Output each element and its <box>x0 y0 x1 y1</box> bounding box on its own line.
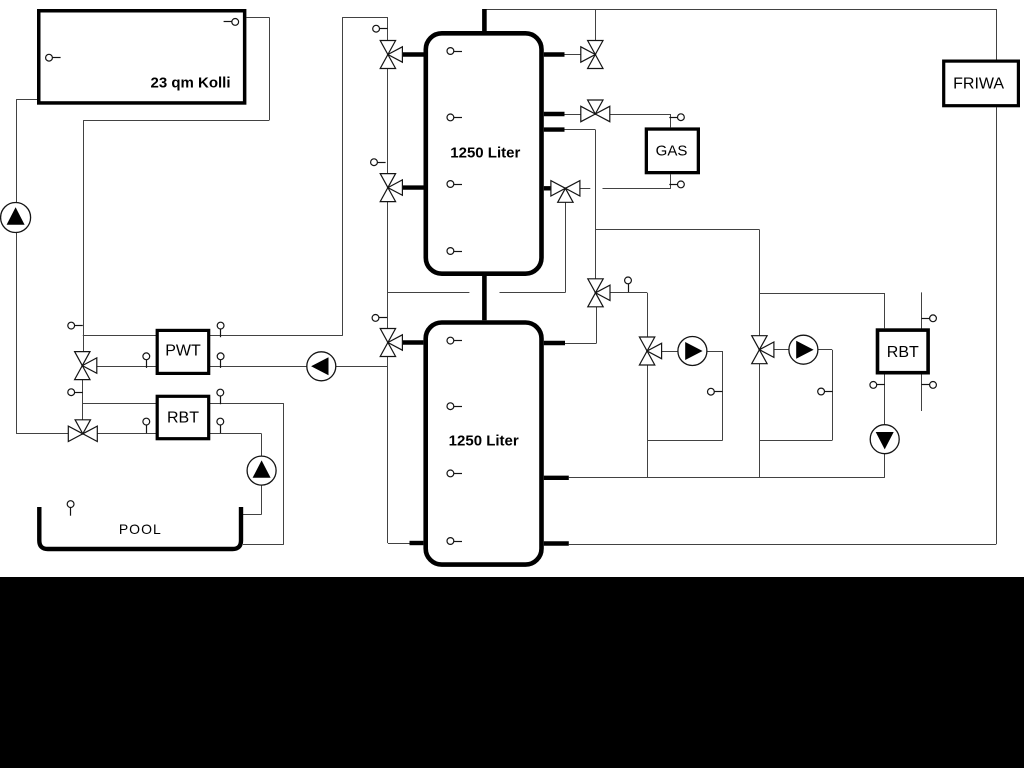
svg-text:POOL: POOL <box>119 521 162 537</box>
svg-text:PWT: PWT <box>165 343 201 360</box>
svg-text:RBT: RBT <box>167 410 199 427</box>
svg-text:23 qm Kolli: 23 qm Kolli <box>150 75 230 92</box>
svg-text:GAS: GAS <box>656 143 688 160</box>
svg-text:1250 Liter: 1250 Liter <box>449 433 519 450</box>
svg-text:1250 Liter: 1250 Liter <box>450 144 520 161</box>
svg-text:FRIWA: FRIWA <box>953 76 1004 93</box>
svg-text:RBT: RBT <box>887 344 919 361</box>
